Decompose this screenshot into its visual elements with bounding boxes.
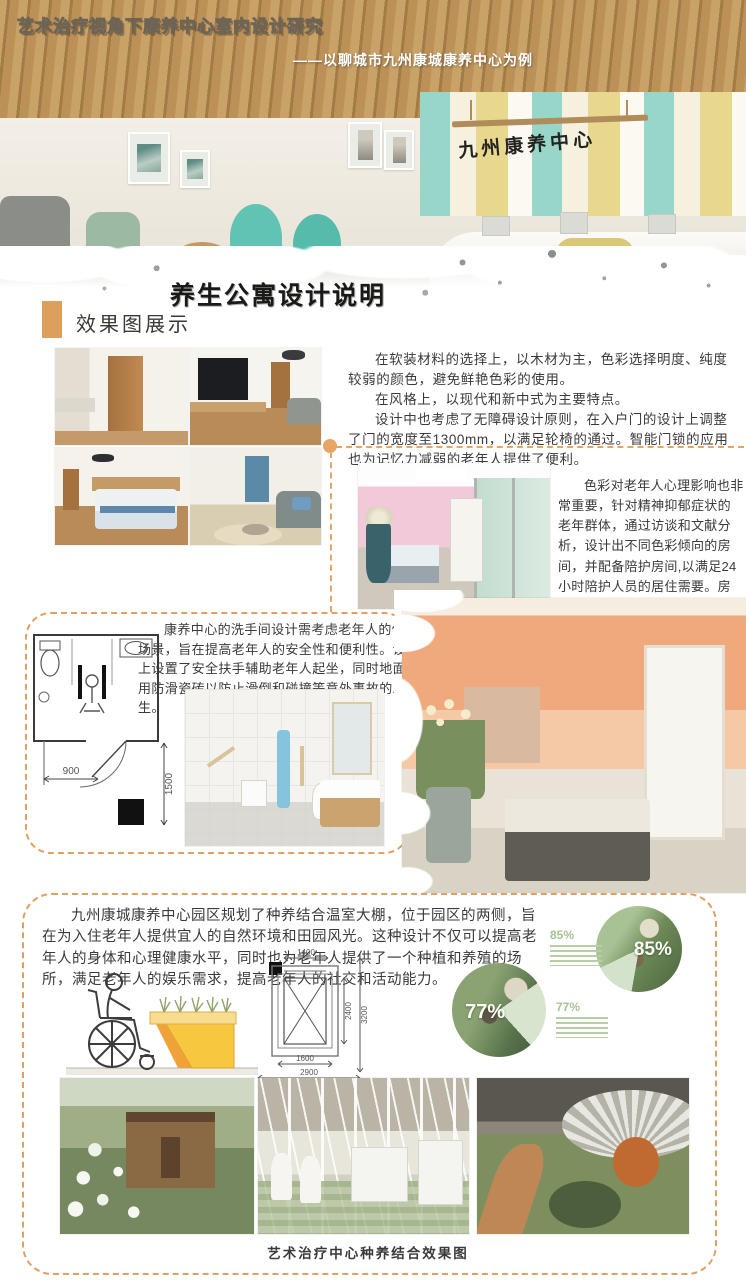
photo-greenhouse-garden (60, 1078, 254, 1234)
stat-note-lines (556, 1017, 608, 1038)
photo-greenhouse-interior (258, 1078, 469, 1234)
section-title: 效果图展示 (76, 308, 191, 337)
stat-note-lines (550, 945, 602, 966)
dashed-divider-vertical (330, 452, 332, 612)
abstract-art (137, 144, 161, 173)
planter-plants (160, 996, 231, 1012)
wall-art-frame (348, 122, 382, 168)
paragraph: 设计中也考虑了无障碍设计原则，在入户门的设计上调整了门的宽度至1300mm，以满… (348, 410, 740, 470)
dim-1400: 1400 (297, 948, 315, 957)
tv-console (190, 402, 266, 412)
bed-runner (100, 506, 174, 513)
grab-bar (207, 746, 235, 768)
rendering-photo-tv-room (190, 348, 321, 445)
white-flowers (60, 1078, 254, 1234)
reception-monitor (482, 216, 510, 236)
stat-pie-77: 77% (452, 963, 546, 1057)
flower-vase (366, 524, 391, 582)
wall-art-frame (384, 130, 414, 170)
sofa (287, 398, 321, 423)
photo-orange-care-room (402, 598, 746, 893)
stat-value: 77% (556, 1000, 580, 1014)
room-door (644, 645, 726, 840)
blue-pillow (292, 497, 310, 511)
orange-tree (613, 1137, 660, 1187)
wheelchair-planter-diagram (62, 960, 262, 1078)
dim-1500: 1500 (164, 772, 175, 795)
tv-screen (198, 358, 248, 401)
blue-accent-wall (245, 456, 269, 503)
hospital-bed (505, 799, 649, 882)
materials-text-block: 在软装材料的选择上，以木材为主，色彩选择明度、纯度较弱的颜色，避免鲜艳色彩的使用… (348, 350, 740, 470)
grab-bar (300, 746, 304, 787)
stat-value: 85% (550, 928, 574, 942)
rendering-photo-kitchen (55, 348, 188, 445)
stat-note-77: 77% (556, 1000, 612, 1038)
flower-vase (426, 787, 471, 864)
wood-vanity (320, 780, 380, 827)
white-shelving (351, 1147, 408, 1202)
pie-percentage: 85% (634, 939, 672, 961)
pie-percentage: 77% (465, 1001, 505, 1024)
photo-indoor-garden (477, 1078, 689, 1234)
bathroom-floor-plan: 900 1500 (28, 627, 178, 839)
paragraph: 在软装材料的选择上，以木材为主，色彩选择明度、纯度较弱的颜色，避免鲜艳色彩的使用… (348, 350, 740, 390)
figure-art (393, 137, 406, 162)
glass-frame (512, 478, 515, 609)
wall-art-frame (180, 150, 210, 188)
reception-monitor (648, 214, 676, 234)
dim-2400: 2400 (344, 1002, 353, 1020)
sign-hanging-rod (470, 100, 472, 120)
blue-shower-curtain (277, 730, 291, 809)
dim-900: 900 (63, 766, 80, 777)
dashed-divider-node (323, 439, 337, 453)
abstract-art (187, 159, 204, 179)
dim-3200: 3200 (360, 1006, 368, 1024)
rendering-photo-living-room (190, 448, 321, 545)
dashed-divider-horizontal (336, 446, 744, 448)
wall-art-frame (128, 132, 170, 184)
bottom-caption: 艺术治疗中心种养结合效果图 (267, 1242, 469, 1262)
stat-note-85: 85% (550, 928, 598, 966)
brush-heading: 养生公寓设计说明 (170, 276, 386, 312)
round-bush (549, 1181, 621, 1228)
dim-1600: 1600 (296, 1054, 314, 1063)
coffee-table (242, 524, 268, 536)
ceiling-fan (282, 350, 306, 360)
shower-stool (241, 780, 267, 807)
person-in-white-coat (271, 1153, 292, 1200)
wood-door (63, 469, 79, 510)
section-accent-block (42, 301, 62, 338)
wood-door (108, 356, 143, 432)
person-in-white-coat (300, 1156, 321, 1203)
poster-subtitle: ——以聊城市九州康城康养中心为例 (293, 50, 533, 70)
poster-page: 九州康养中心 艺术治疗视角下康养中心室内设计研究 ——以聊城市九州康城康养中心为… (0, 0, 746, 1280)
tulip-bouquet (416, 698, 485, 798)
wood-floor (55, 431, 188, 445)
photo-accessible-bathroom (185, 689, 384, 846)
paragraph: 在风格上，以现代和新中式为主要特点。 (348, 390, 740, 410)
room-door (450, 498, 483, 582)
hero-lobby-photo: 九州康养中心 (0, 0, 746, 312)
rendering-photo-bedroom (55, 448, 188, 545)
ceiling-fan (92, 454, 113, 462)
garden-path (477, 1144, 551, 1234)
dim-2900: 2900 (300, 1068, 318, 1077)
wheelchair-user (88, 974, 154, 1069)
ceiling-light-panel (416, 467, 466, 480)
stat-pie-85: 85% (596, 906, 682, 992)
reception-monitor (560, 212, 588, 234)
photo-pink-care-room (358, 463, 550, 609)
mirror-cabinet (332, 702, 372, 775)
kitchen-counter (55, 398, 95, 412)
white-shelving (418, 1140, 462, 1204)
figure-art (358, 130, 373, 159)
poster-title: 艺术治疗视角下康养中心室内设计研究 (17, 12, 323, 37)
elevator-plan-diagram: 1400 2400 3200 1600 2900 (256, 946, 368, 1086)
